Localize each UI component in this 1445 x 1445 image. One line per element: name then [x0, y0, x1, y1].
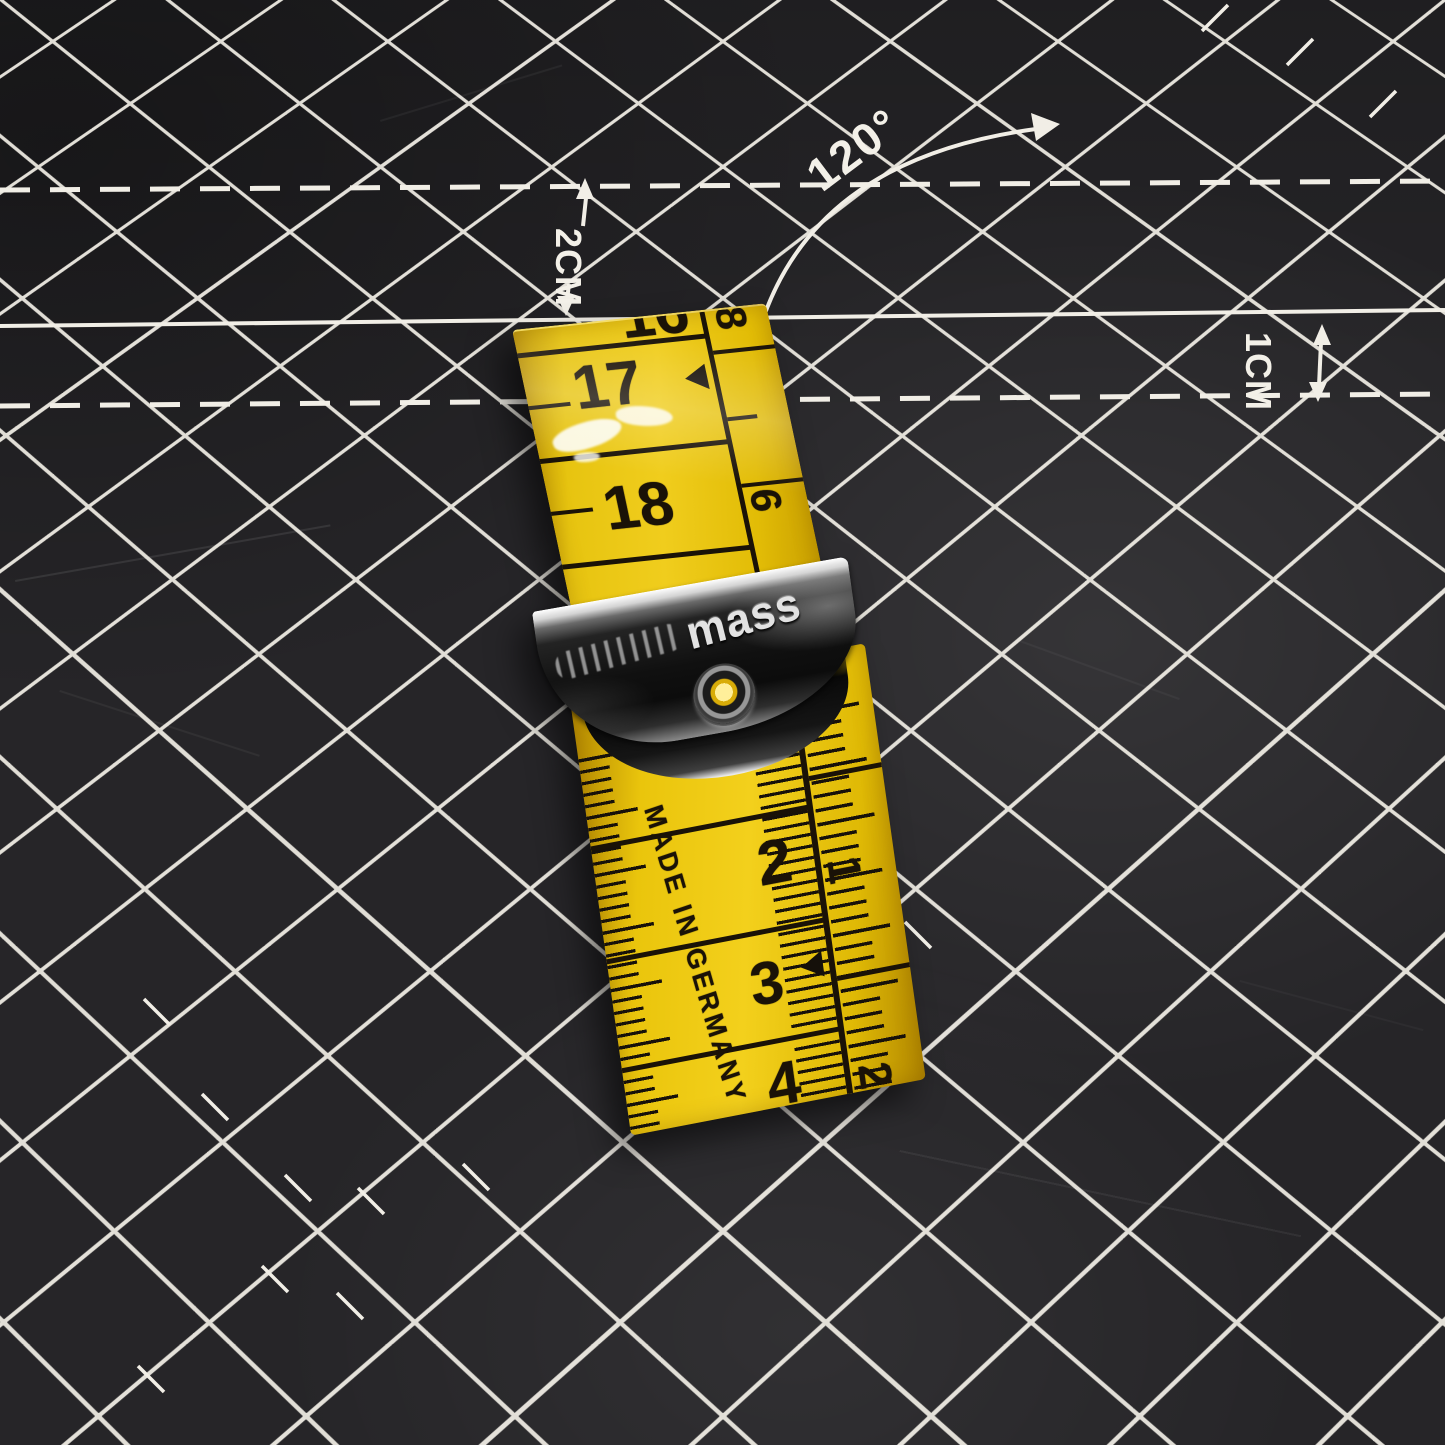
white-scuff: [573, 451, 601, 464]
cm-line: [539, 439, 729, 463]
inch-tick: [727, 414, 758, 421]
inch-number-6: 6: [742, 487, 789, 514]
inch-number-8: 8: [708, 304, 755, 331]
cm-line: [562, 545, 752, 569]
white-scuff: [615, 405, 673, 426]
clasp-embossed-text: mass: [681, 578, 806, 661]
pointer-arrow-icon: [682, 364, 709, 392]
rivet-icon: [689, 659, 759, 731]
illegible-embossing: [553, 621, 683, 681]
tape-measure: 16 17 18 8 6: [0, 0, 1445, 1445]
white-scuff: [548, 412, 626, 458]
cm-line: [517, 334, 707, 358]
inch-line: [741, 477, 804, 487]
cm-number-16: 16: [613, 303, 695, 349]
half-cm-tick: [551, 507, 594, 515]
half-cm-tick: [528, 402, 571, 410]
pointer-arrow-icon: [799, 951, 824, 981]
photo-of-tape-measure-on-cutting-mat: 120° 2CM 1CM 16 17 18 8 6: [0, 0, 1445, 1445]
metal-clasp: mass: [532, 556, 883, 869]
inch-line: [713, 344, 776, 354]
cm-number-17: 17: [567, 352, 649, 420]
cm-number-18: 18: [598, 473, 680, 541]
